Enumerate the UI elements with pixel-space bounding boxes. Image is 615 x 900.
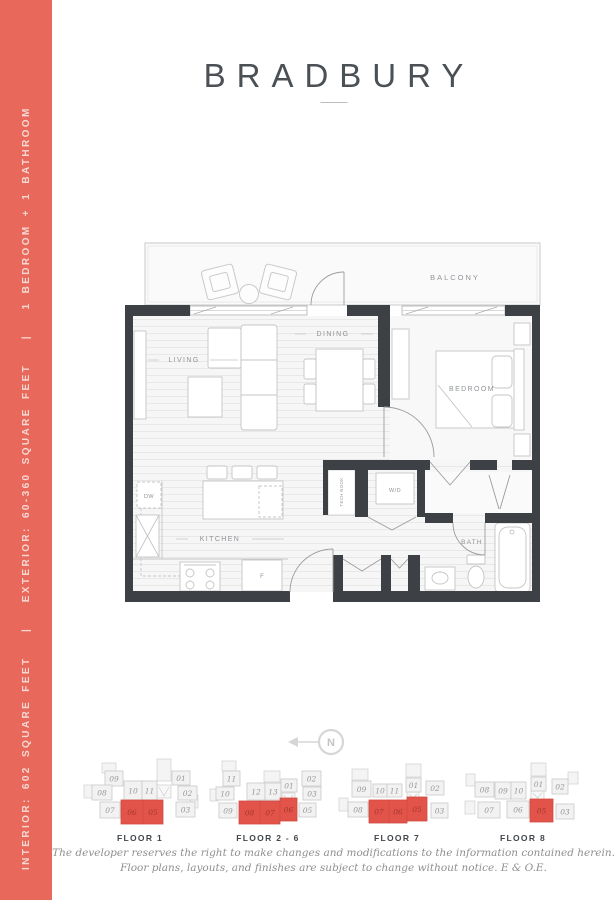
keyplan-unit-number: 03 — [560, 807, 570, 816]
vanity — [425, 567, 455, 590]
keyplan-unit-number: 02 — [430, 784, 440, 793]
keyplan-caption: FLOOR 2 - 6 — [208, 833, 328, 843]
closet-floor — [425, 472, 532, 513]
keyplan-floor-1: 09081011010207060503FLOOR 1 — [80, 757, 200, 843]
keyplan-unit-number: 08 — [97, 788, 107, 797]
keyplan-unit-number: 07 — [265, 808, 275, 817]
keyplan-unit-number: 03 — [181, 805, 191, 814]
tv-console — [134, 331, 146, 419]
headboard — [514, 349, 524, 430]
keyplan-unit-number: 06 — [127, 808, 137, 817]
keyplan-building-outline: 080910010207060503 — [463, 757, 583, 825]
disclaimer-line-2: Floor plans, layouts, and finishes are s… — [52, 861, 615, 876]
keyplan-unit-number: 09 — [109, 774, 119, 783]
keyplan-unit-number: 02 — [555, 782, 565, 791]
keyplan-unit-number: 01 — [409, 781, 419, 790]
stool — [232, 466, 252, 479]
keyplan-unit-number: 10 — [128, 786, 138, 795]
keyplan-unit-number: 09 — [357, 785, 367, 794]
keyplan-unit-number: 03 — [435, 806, 445, 815]
bathtub — [495, 523, 530, 592]
keyplan-unit-number: 09 — [498, 786, 508, 795]
dw-label: DW — [144, 494, 154, 500]
dresser — [392, 329, 409, 399]
toilet-tank — [467, 555, 485, 564]
keyplan-unit-number: 11 — [390, 786, 400, 795]
dining-chair — [363, 384, 375, 404]
attribute-sidebar: INTERIOR: 602 SQUARE FEET | EXTERIOR: 60… — [0, 0, 52, 900]
dining-label: DINING — [317, 331, 350, 338]
north-arrow-icon — [288, 737, 298, 747]
dining-table — [316, 349, 363, 411]
balcony-area — [145, 243, 540, 305]
keyplan-unit-number: 05 — [148, 808, 158, 817]
dining-chair — [304, 384, 316, 404]
coffee-table — [188, 377, 222, 417]
keyplan-caption: FLOOR 8 — [463, 833, 583, 843]
keyplan-caption: FLOOR 7 — [337, 833, 457, 843]
keyplan-unit-number: 06 — [513, 805, 523, 814]
sofa-chaise — [208, 328, 241, 368]
toilet — [468, 566, 484, 588]
nightstand — [514, 434, 530, 456]
bath-label: BATH — [461, 539, 483, 546]
keyplan-unit-number: 11 — [145, 786, 155, 795]
keyplan-unit-number: 12 — [251, 787, 261, 796]
balcony-label: BALCONY — [430, 273, 480, 282]
keyplan-unit-number: 02 — [307, 774, 317, 783]
keyplan-unit-number: 06 — [393, 807, 403, 816]
unit-specs-text: INTERIOR: 602 SQUARE FEET | EXTERIOR: 60… — [21, 0, 32, 900]
floor-plan: BALCONY LIVING DINING BEDROOM KITCHEN BA… — [120, 235, 550, 605]
keyplan-floor-2-6: 111012130102030908070605FLOOR 2 - 6 — [208, 757, 328, 843]
dining-chair — [363, 359, 375, 379]
pillow — [492, 356, 512, 388]
keyplan-unit-number: 02 — [183, 789, 193, 798]
stool — [257, 466, 277, 479]
title-divider — [320, 102, 347, 103]
page-body: BRADBURY — [52, 0, 615, 900]
compass-n-label: N — [327, 737, 335, 749]
keyplan-unit-number: 05 — [303, 806, 313, 815]
keyplan-caption: FLOOR 1 — [80, 833, 200, 843]
keyplan-building-outline: 111012130102030908070605 — [208, 757, 328, 825]
keyplan-unit-number: 06 — [284, 805, 294, 814]
keyplan-unit-number: 05 — [537, 806, 547, 815]
keyplan-unit-number: 09 — [223, 806, 233, 815]
kitchen-label: KITCHEN — [200, 536, 241, 543]
keyplan-unit-number: 07 — [105, 806, 115, 815]
kitchen-island — [203, 481, 283, 519]
keyplan-unit-number: 08 — [480, 785, 490, 794]
keyplan-unit-number: 01 — [176, 774, 186, 783]
fridge-label: F — [260, 574, 264, 580]
keyplan-unit-number: 01 — [284, 781, 294, 790]
stool — [207, 466, 227, 479]
sofa — [241, 325, 277, 430]
keyplan-unit-number: 08 — [353, 805, 363, 814]
keyplan-unit-number: 10 — [220, 789, 230, 798]
dining-chair — [304, 359, 316, 379]
keyplan-unit-number: 07 — [374, 807, 384, 816]
keyplan-unit-number: 11 — [227, 774, 237, 783]
keyplan-floor-7: 09101101020807060503FLOOR 7 — [337, 757, 457, 843]
wd-label: W/D — [389, 488, 401, 494]
keyplan-building-outline: 09081011010207060503 — [80, 757, 200, 825]
living-label: LIVING — [168, 357, 199, 364]
keyplan-unit-number: 07 — [484, 806, 494, 815]
disclaimer: The developer reserves the right to make… — [52, 846, 615, 876]
nightstand — [514, 323, 530, 345]
keyplan-unit-number: 10 — [514, 786, 524, 795]
keyplan-unit-number: 13 — [268, 787, 278, 796]
tech-nook-label: TECH NOOK — [339, 477, 344, 506]
keyplan-unit-number: 10 — [375, 786, 385, 795]
keyplan-floor-8: 080910010207060503FLOOR 8 — [463, 757, 583, 843]
page-title: BRADBURY — [52, 57, 615, 95]
keyplan-unit-number: 08 — [245, 808, 255, 817]
keyplan-unit-number: 01 — [534, 780, 544, 789]
keyplan-building-outline: 09101101020807060503 — [337, 757, 457, 825]
patio-table — [240, 285, 259, 304]
keyplan-unit-number: 03 — [307, 789, 317, 798]
pillow — [492, 395, 512, 427]
disclaimer-line-1: The developer reserves the right to make… — [52, 846, 615, 861]
keyplan-unit-number: 05 — [412, 805, 422, 814]
bedroom-label: BEDROOM — [449, 386, 495, 393]
keyplan-row: 09081011010207060503FLOOR 11110121301020… — [52, 757, 615, 847]
